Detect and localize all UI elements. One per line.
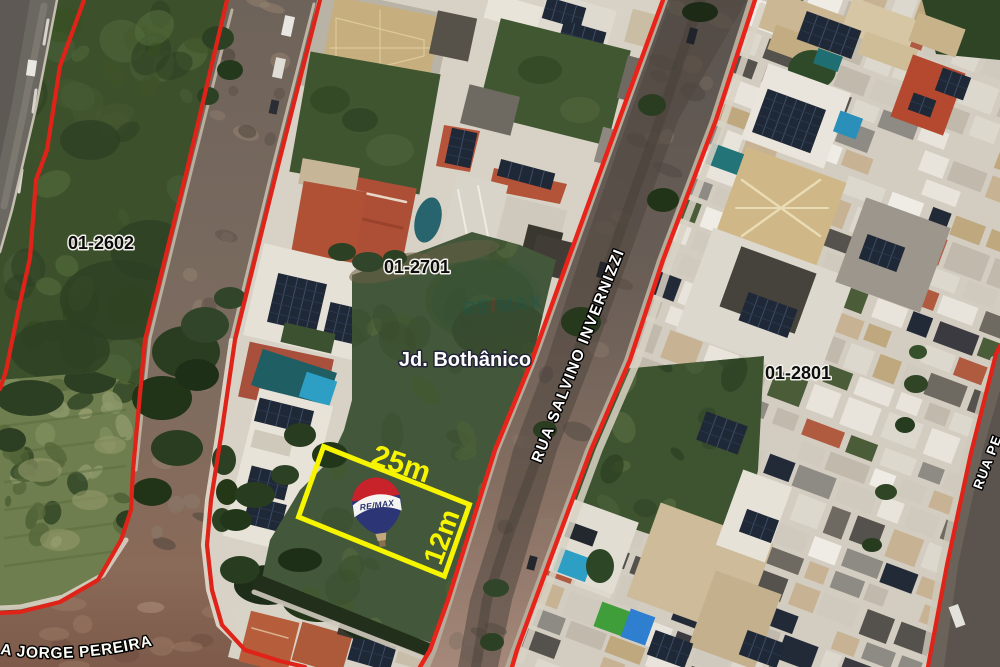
svg-text:Jd. Bothânico: Jd. Bothânico: [399, 349, 531, 371]
svg-text:01-2701: 01-2701: [384, 257, 450, 277]
svg-text:01-2602: 01-2602: [68, 233, 134, 253]
svg-text:01-2801: 01-2801: [765, 363, 831, 383]
